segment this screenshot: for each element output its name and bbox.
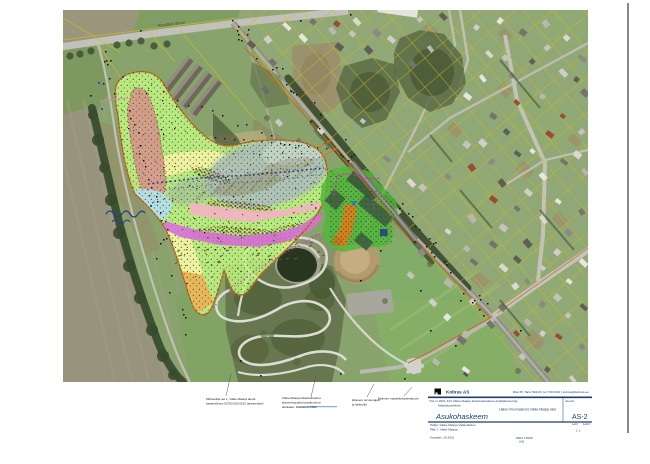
svg-text:Maastikuarhitekt: Maastikuarhitekt — [438, 404, 461, 408]
svg-text:Lääne-Viru maakond, Väike-Maar: Lääne-Viru maakond, Väike-Maarja vald — [499, 408, 556, 412]
svg-text:Väike-Maarja külastuskeskus: Väike-Maarja külastuskeskus — [282, 396, 321, 400]
svg-text:Pikk 7, Väike-Maarja: Pikk 7, Väike-Maarja — [430, 428, 458, 432]
svg-text:katastriüksus 92702:002:0012 (: katastriüksus 92702:002:0012 (planeerita… — [206, 402, 264, 406]
svg-text:Töö nr 2021-123 Väike-Maarja: Töö nr 2021-123 Väike-Maarja külastuskes… — [429, 399, 518, 403]
svg-text:(A3): (A3) — [519, 440, 524, 444]
svg-text:Riia 35, Tartu 50410 | tel 730: Riia 35, Tartu 50410 | tel 730 0310 | ko… — [513, 390, 589, 394]
svg-text:Asukohaskeem: Asukohaskeem — [435, 412, 488, 421]
svg-text:Leht: Leht — [572, 422, 578, 426]
svg-text:Tellija: Väike-Maarja Vallaval: Tellija: Väike-Maarja Vallavalitsus — [430, 423, 476, 427]
svg-text:Mõisavälja tee 1, Väike-Maarja: Mõisavälja tee 1, Väike-Maarja alevik — [206, 397, 256, 401]
svg-text:AS-2: AS-2 — [572, 414, 588, 421]
svg-text:planeeringuala kontaktvöönd: planeeringuala kontaktvöönd — [282, 401, 321, 405]
svg-text:Joonis: Joonis — [565, 399, 574, 403]
svg-text:Ebavere maastikukaitseala piir: Ebavere maastikukaitseala piir — [378, 397, 419, 401]
svg-text:Kuupäev: 10.2021: Kuupäev: 10.2021 — [430, 436, 455, 440]
svg-text:ja laskeväli: ja laskeväli — [351, 403, 367, 407]
svg-text:Ebavere terviserajad: Ebavere terviserajad — [352, 398, 380, 402]
svg-text:1 1: 1 1 — [576, 429, 581, 433]
svg-text:Lehti: Lehti — [583, 422, 590, 426]
svg-text:Kobras AS: Kobras AS — [446, 390, 469, 395]
